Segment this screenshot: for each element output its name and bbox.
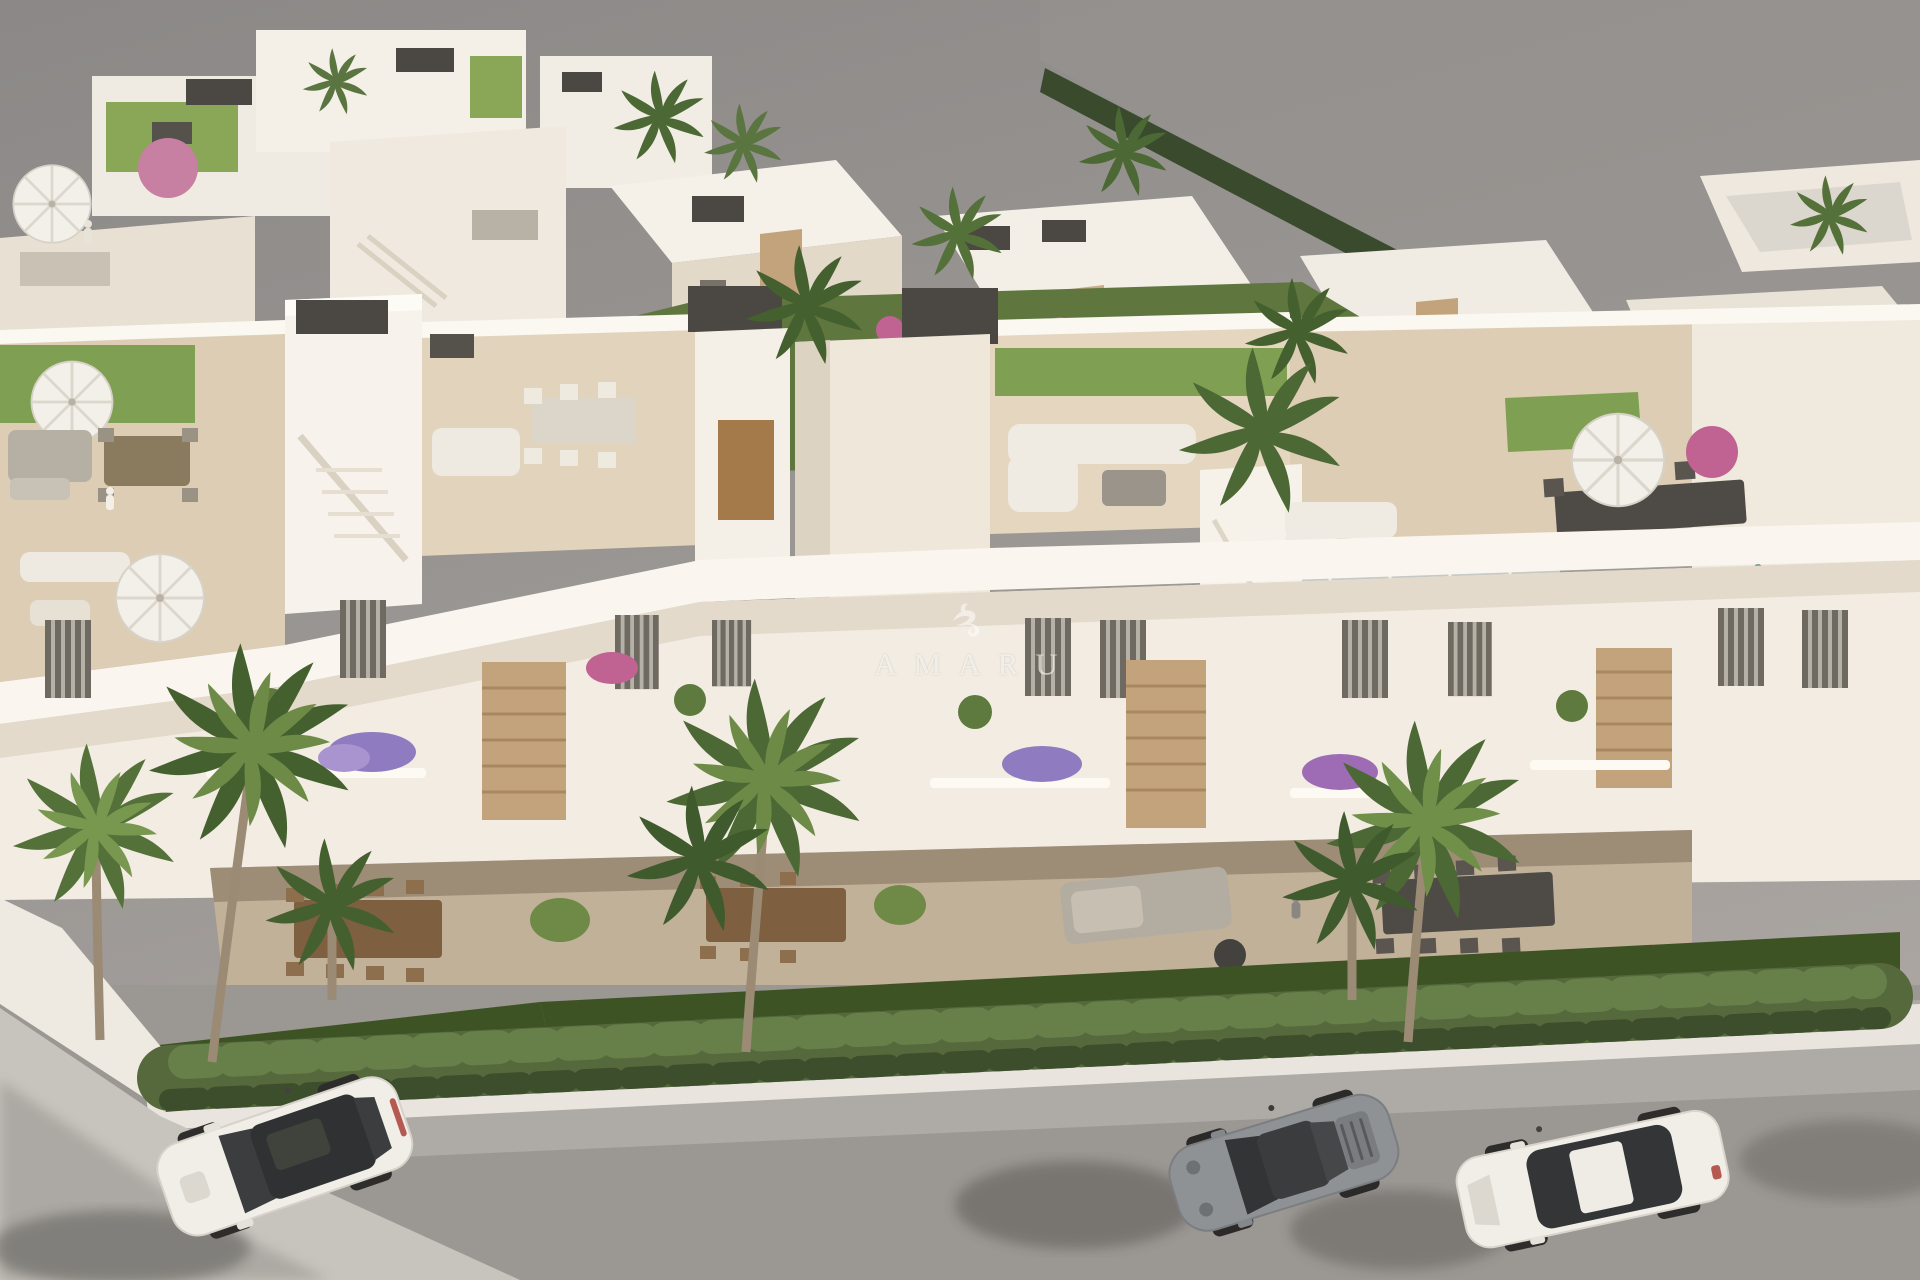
pergola-box: [296, 300, 388, 334]
stair-tower: [285, 294, 422, 614]
person-figure: [84, 220, 92, 243]
render-scene: [0, 0, 1920, 1280]
architectural-render: AMARU: [0, 0, 1920, 1280]
wood-entry-door: [718, 420, 774, 520]
pink-flowering-tree: [138, 138, 198, 198]
townhouse-row: [0, 286, 1920, 1040]
bougainvillea: [1686, 426, 1738, 478]
rooftop-parasol: [13, 165, 90, 242]
